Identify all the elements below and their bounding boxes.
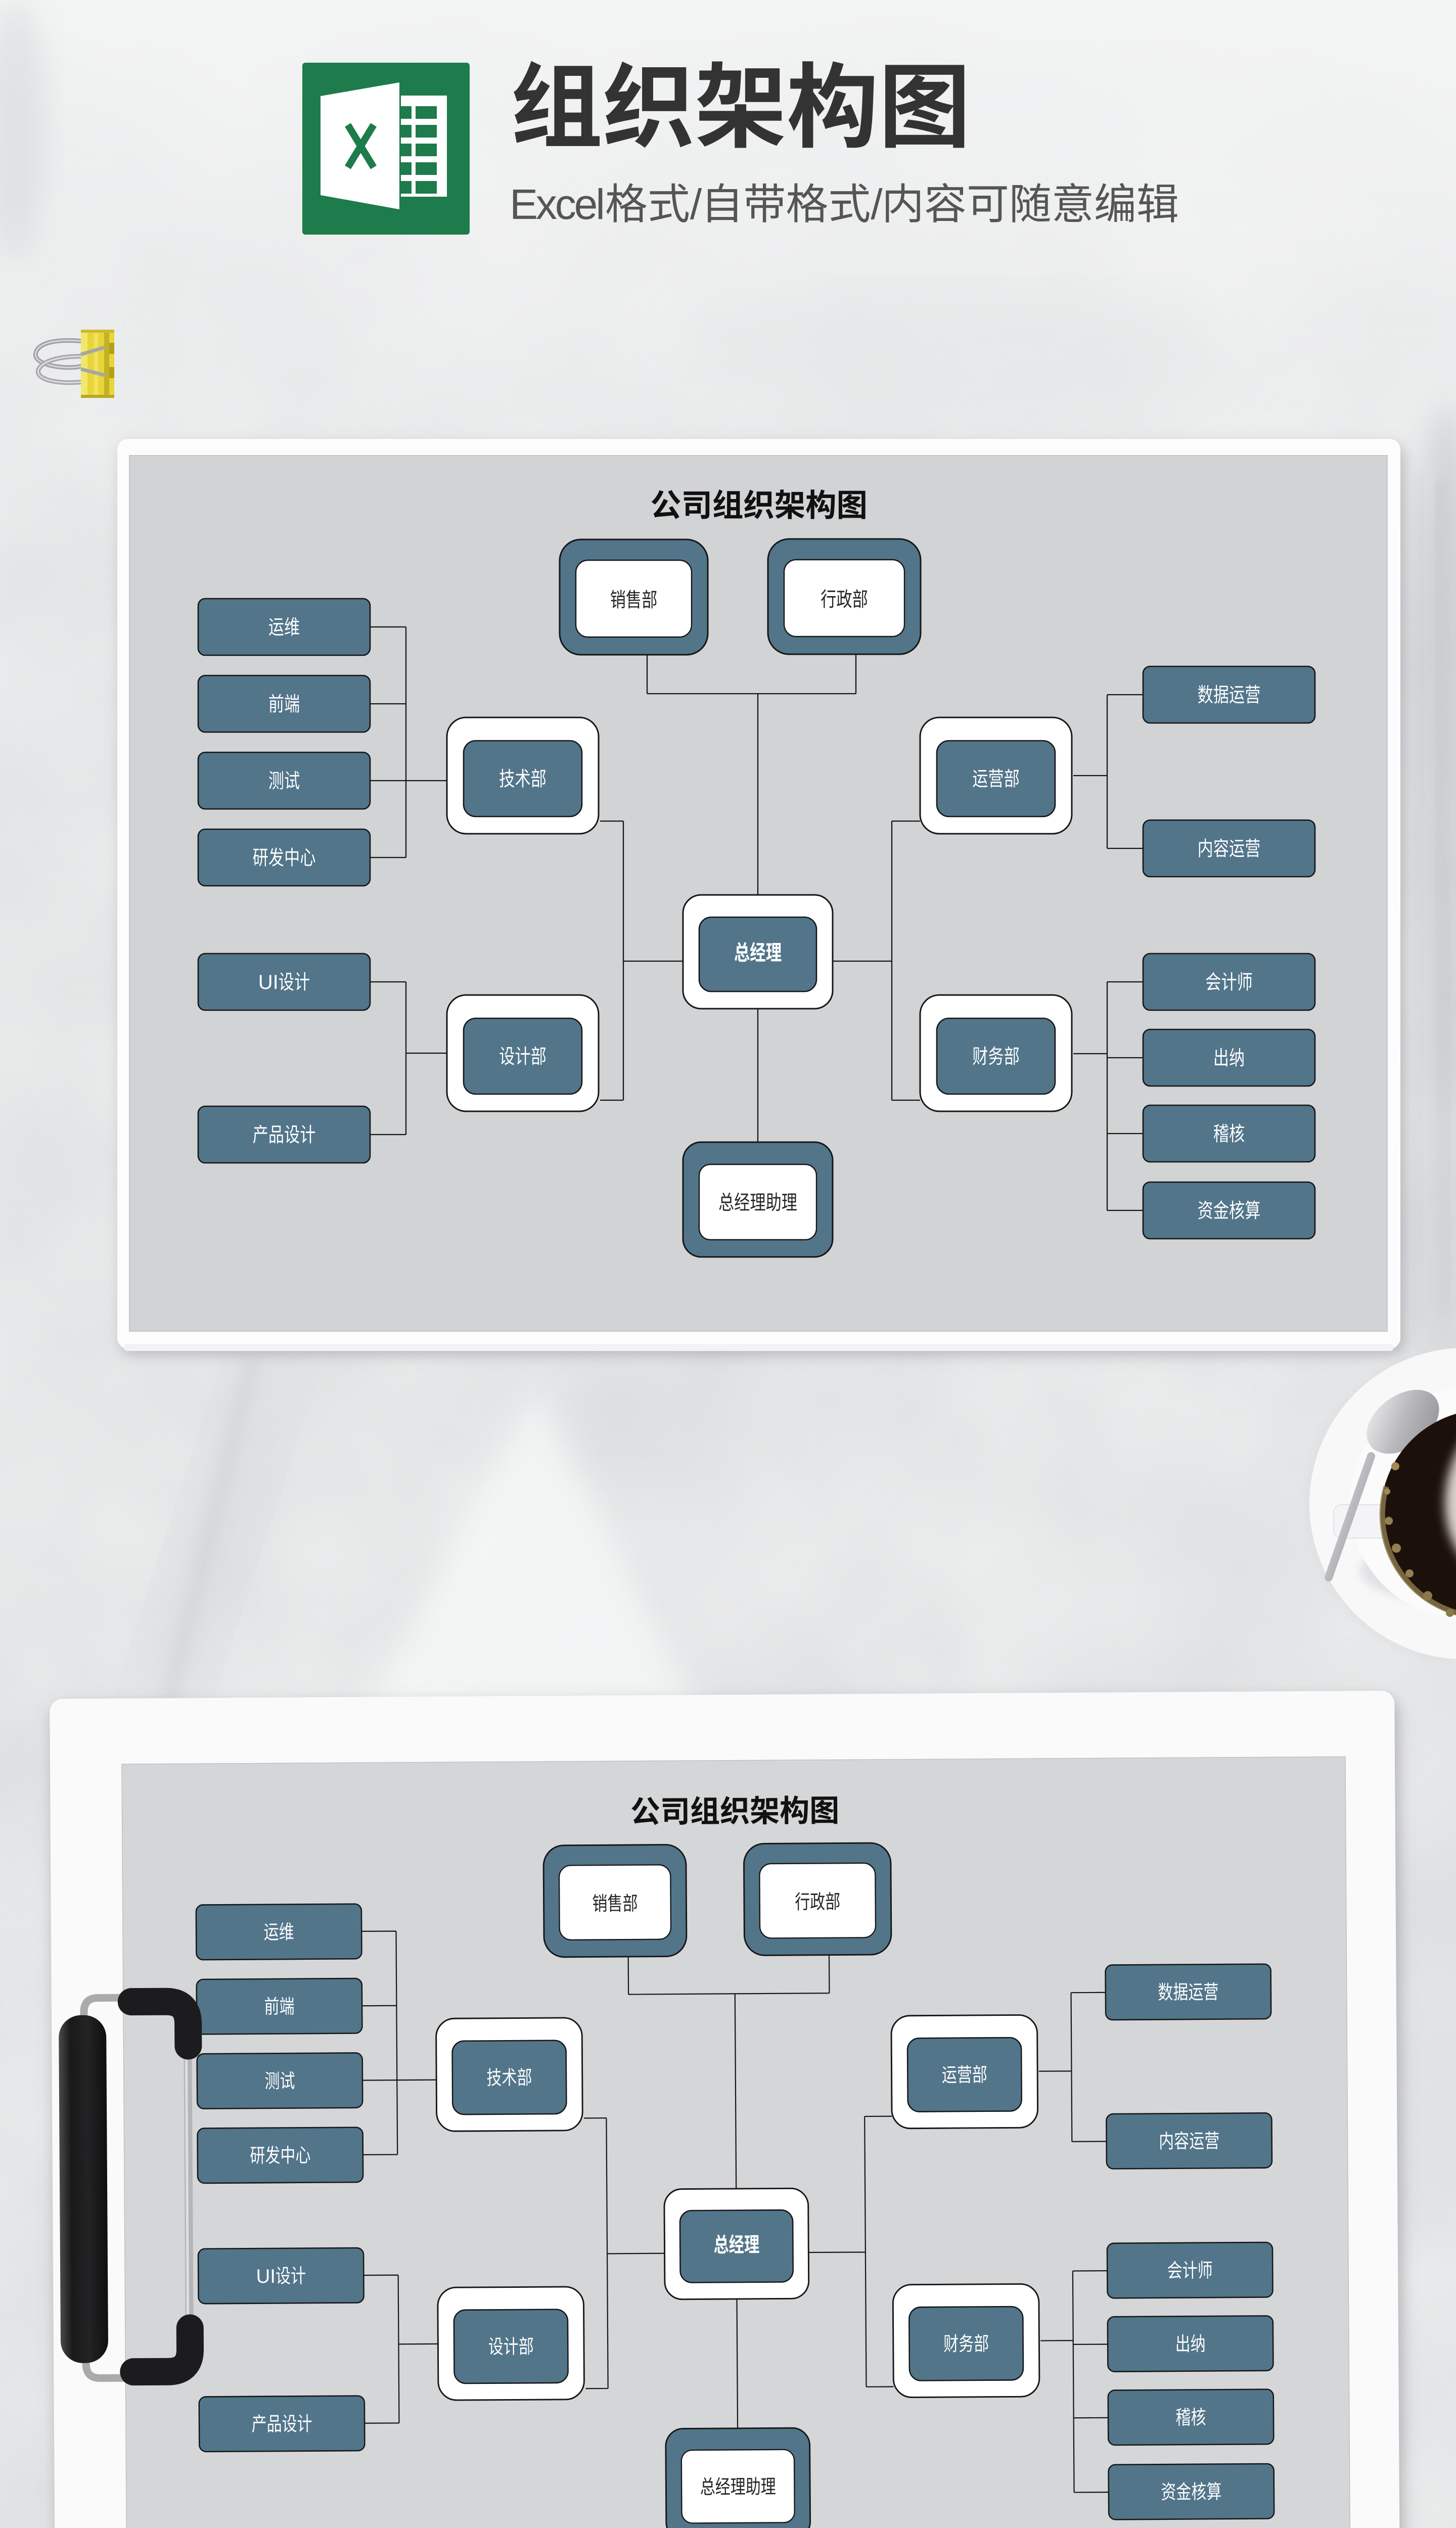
svg-text:/: / (871, 180, 883, 228)
svg-text:UI: UI (258, 971, 279, 994)
svg-text:/: / (690, 180, 702, 228)
svg-text:Excel: Excel (510, 180, 605, 228)
